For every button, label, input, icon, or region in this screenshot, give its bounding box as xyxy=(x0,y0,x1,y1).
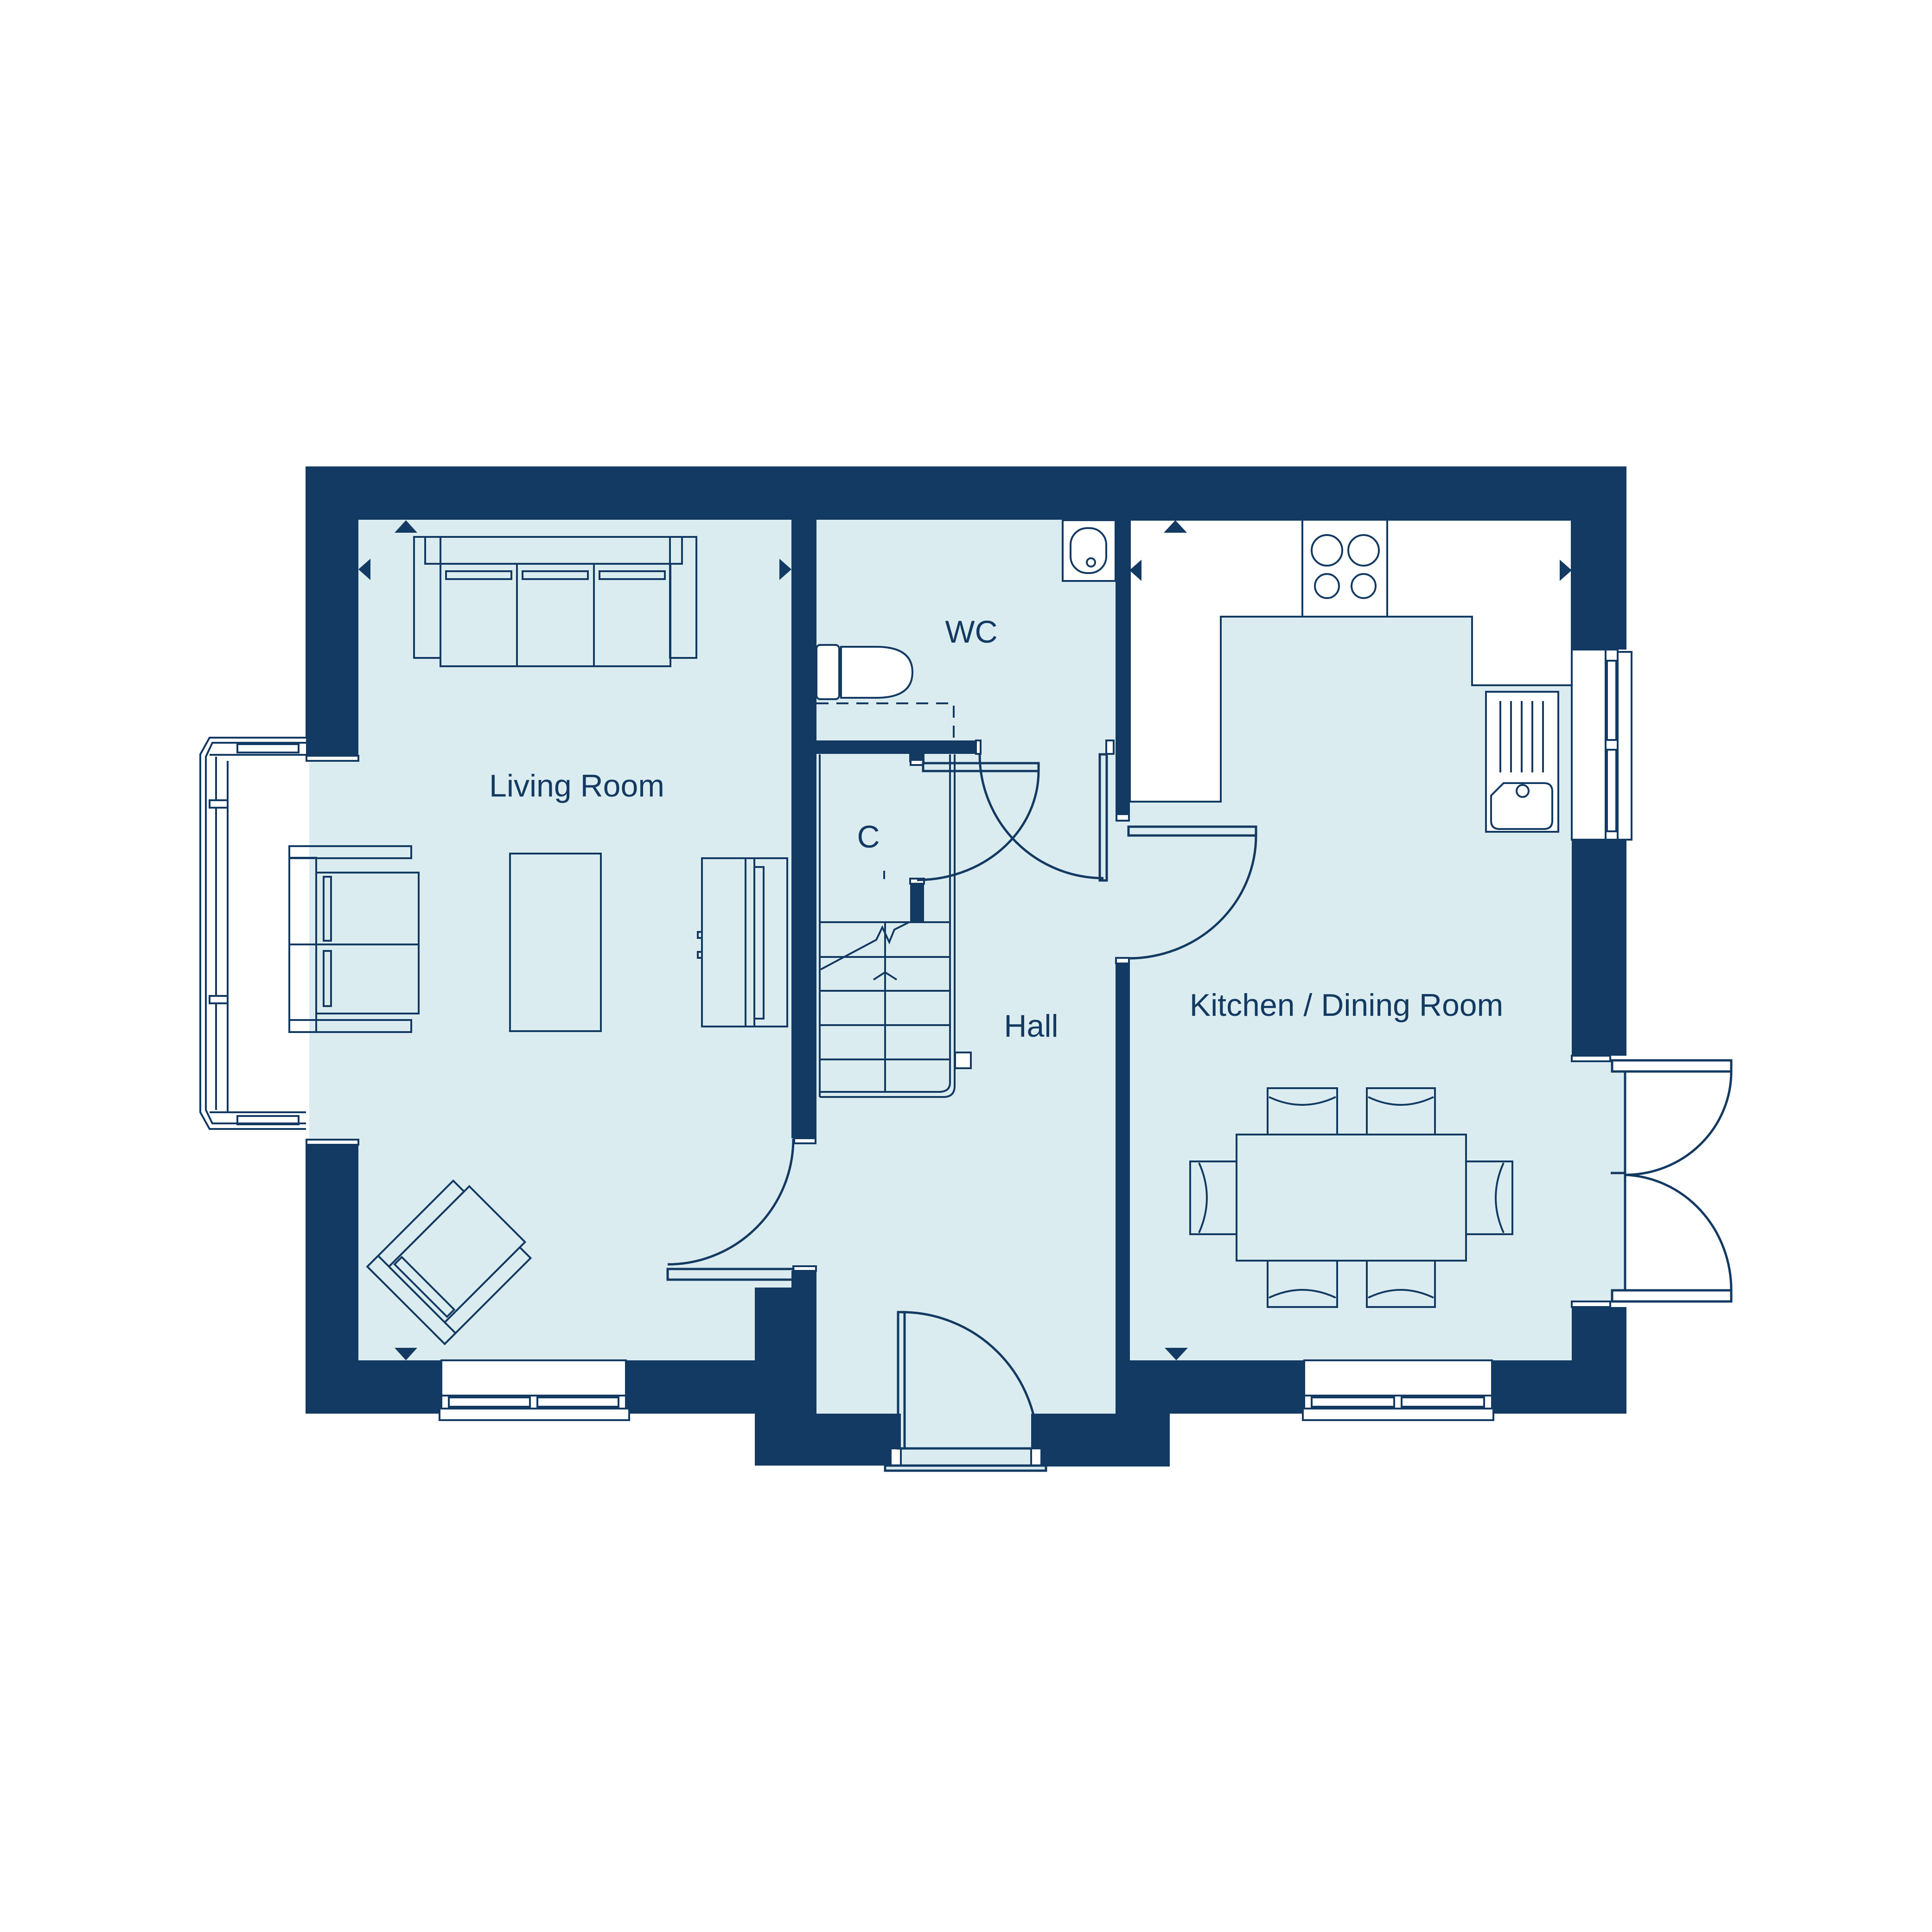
svg-text:WC: WC xyxy=(945,614,997,650)
svg-text:Living Room: Living Room xyxy=(489,768,664,803)
svg-text:Hall: Hall xyxy=(1004,1008,1058,1044)
svg-text:C: C xyxy=(857,819,880,854)
svg-text:Kitchen / Dining Room: Kitchen / Dining Room xyxy=(1190,988,1504,1023)
